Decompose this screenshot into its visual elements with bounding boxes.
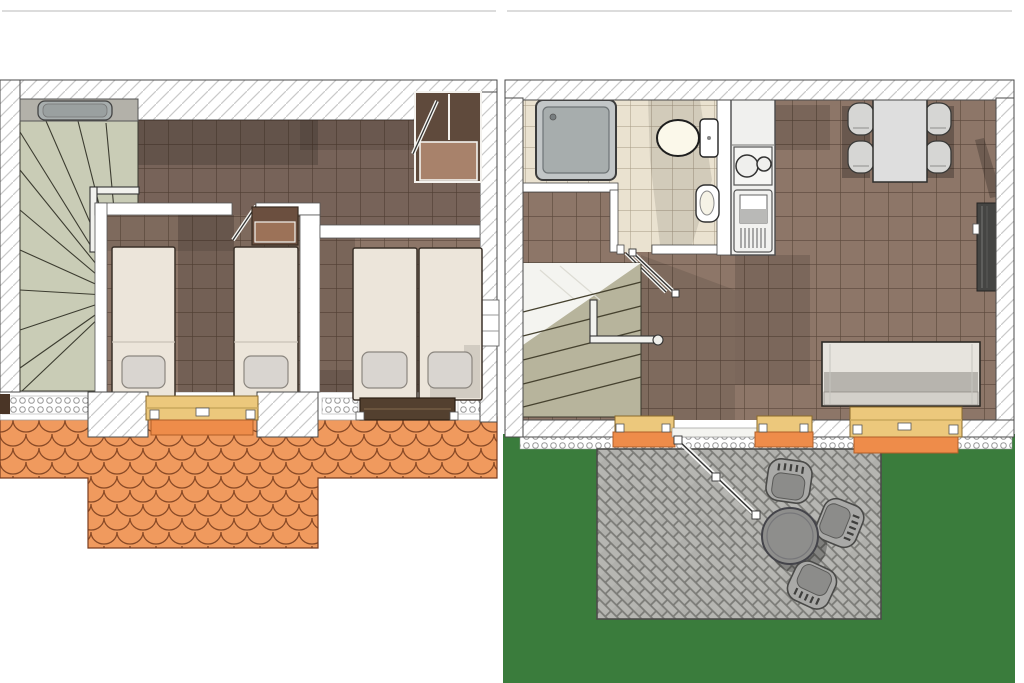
dresser <box>252 207 298 245</box>
roof <box>0 417 497 548</box>
patio-table <box>762 508 818 564</box>
upper-floor-plan <box>0 11 499 548</box>
interior-wall <box>320 225 480 238</box>
floor-shadow <box>735 255 810 385</box>
interior-wall <box>300 215 320 392</box>
exterior-wall-right <box>996 98 1014 437</box>
interior-wall <box>523 183 618 192</box>
window-sill-orange <box>755 432 813 447</box>
window-1 <box>613 416 675 447</box>
dormer-wall <box>257 392 318 437</box>
washbasin-counter <box>20 99 138 121</box>
floor-shadow <box>775 105 830 150</box>
exterior-wall-bottom <box>812 420 850 437</box>
sofa-front <box>824 392 978 405</box>
patio <box>597 449 881 619</box>
floor-plan-canvas <box>0 0 1024 683</box>
pillow <box>362 352 407 388</box>
ground-floor-plan <box>503 11 1015 683</box>
interior-wall <box>610 190 618 252</box>
bedroom-1 <box>95 203 320 397</box>
dining-chair <box>925 103 951 135</box>
pillow <box>244 356 288 388</box>
cooktop <box>734 147 772 185</box>
kitchen-counter <box>731 98 775 255</box>
pillow <box>428 352 472 388</box>
wardrobe <box>413 92 481 182</box>
window-3 <box>850 407 962 453</box>
dining-set <box>842 98 954 182</box>
refrigerator <box>734 190 772 252</box>
dining-chair <box>848 141 874 173</box>
exterior-wall-bottom <box>523 420 617 437</box>
dining-table <box>873 98 927 182</box>
patio-chair <box>764 457 813 505</box>
window-handle <box>196 408 209 416</box>
door-threshold <box>672 428 757 437</box>
exterior-wall-left <box>505 98 523 437</box>
single-bed <box>234 247 298 397</box>
window-2 <box>755 416 813 447</box>
burner-small <box>757 157 771 171</box>
interior-wall <box>617 245 624 254</box>
floor-plan-page <box>0 0 1024 683</box>
dormer-window <box>146 396 258 420</box>
insulation-strip <box>2 396 94 414</box>
window-handle <box>898 423 911 430</box>
dining-chair <box>848 103 874 135</box>
exterior-wall-top <box>505 80 1014 100</box>
interior-wall <box>95 203 107 392</box>
dining-chair <box>925 141 951 173</box>
exterior-wall-left <box>0 80 20 392</box>
dormer-wall <box>88 392 148 437</box>
sofa-seat <box>824 372 978 392</box>
dormer <box>88 392 318 437</box>
single-bed <box>419 248 482 400</box>
roof-tiles <box>0 417 497 548</box>
interior-wall <box>95 203 232 215</box>
wall-heater <box>973 203 997 291</box>
beam-section <box>0 394 10 414</box>
single-bed <box>353 248 417 400</box>
single-bed <box>112 247 175 397</box>
burner-large <box>736 155 758 177</box>
roof-window <box>356 398 458 420</box>
shower-drain <box>550 114 556 120</box>
pillow <box>122 356 165 388</box>
bedroom-2 <box>320 225 482 420</box>
washbasin-small <box>696 185 719 222</box>
wardrobe-front <box>420 142 477 180</box>
dormer-window-sill <box>151 420 253 435</box>
toilet-bowl <box>657 120 699 156</box>
insulation-strip <box>322 398 358 414</box>
window-sill-orange <box>854 437 958 453</box>
shower <box>536 100 616 180</box>
toilet <box>657 119 718 157</box>
exterior-wall-bottom <box>960 420 1014 437</box>
vent-grille <box>741 228 765 248</box>
sofa <box>822 342 980 406</box>
window-sill-orange <box>613 432 675 447</box>
